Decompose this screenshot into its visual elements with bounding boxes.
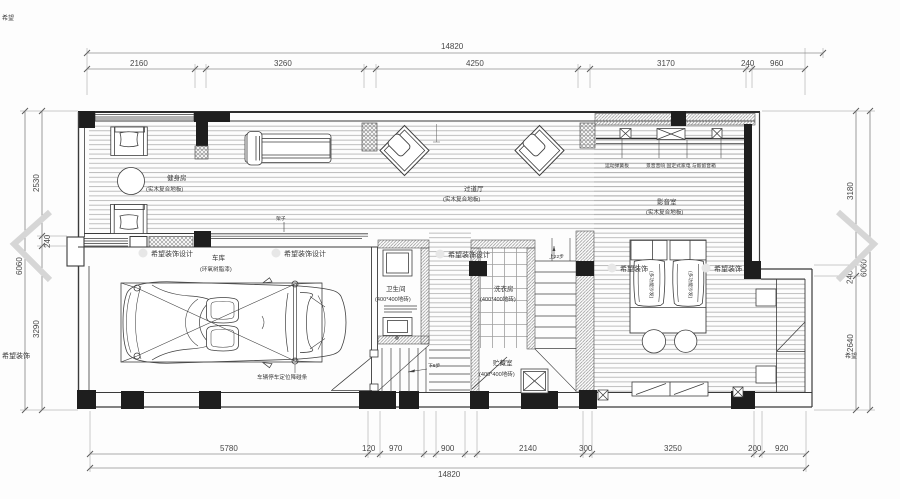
svg-text:2640: 2640 (846, 334, 855, 352)
svg-text:3260: 3260 (274, 59, 292, 68)
svg-text:3290: 3290 (32, 320, 41, 338)
svg-text:960: 960 (770, 59, 784, 68)
svg-text:6060: 6060 (860, 259, 869, 277)
svg-text:(400*400地砖): (400*400地砖) (480, 295, 516, 303)
svg-text:希望装饰: 希望装饰 (2, 351, 30, 360)
svg-text:车库: 车库 (212, 253, 226, 262)
svg-text:架子: 架子 (276, 215, 286, 222)
svg-text:卫生间: 卫生间 (386, 284, 406, 293)
svg-text:(400*400地砖): (400*400地砖) (479, 370, 515, 378)
svg-text:6060: 6060 (15, 257, 24, 275)
svg-text:运动弹簧板: 运动弹簧板 (605, 162, 629, 169)
svg-text:3170: 3170 (657, 59, 675, 68)
svg-text:下6步: 下6步 (428, 363, 440, 369)
svg-text:3180: 3180 (846, 182, 855, 200)
svg-text:(多功能沙发): (多功能沙发) (648, 271, 655, 299)
svg-text:希望: 希望 (845, 352, 857, 360)
svg-text:(多功能沙发): (多功能沙发) (687, 271, 694, 299)
svg-text:(环氧树脂漆): (环氧树脂漆) (200, 265, 232, 273)
svg-text:希望装饰设计: 希望装饰设计 (284, 249, 326, 258)
svg-text:2530: 2530 (32, 174, 41, 192)
svg-text:900: 900 (441, 444, 455, 453)
svg-text:健身房: 健身房 (167, 173, 187, 182)
svg-text:920: 920 (775, 444, 789, 453)
svg-text:5780: 5780 (220, 444, 238, 453)
svg-text:景音音响 固定式家电 与嵌留音箱: 景音音响 固定式家电 与嵌留音箱 (646, 162, 716, 169)
svg-text:14820: 14820 (441, 42, 464, 51)
svg-text:300: 300 (579, 444, 593, 453)
svg-text:车辆停车定位降碰条: 车辆停车定位降碰条 (257, 373, 308, 381)
svg-text:240: 240 (741, 59, 755, 68)
svg-text:贮藏室: 贮藏室 (493, 358, 513, 367)
svg-text:(实木复合地板): (实木复合地板) (646, 208, 683, 216)
svg-text:14820: 14820 (438, 470, 461, 479)
svg-text:4250: 4250 (466, 59, 484, 68)
svg-text:(实木复合地板): (实木复合地板) (443, 195, 480, 203)
svg-text:3250: 3250 (664, 444, 682, 453)
svg-text:希望装饰: 希望装饰 (714, 264, 742, 273)
svg-text:希望装饰设计: 希望装饰设计 (448, 250, 490, 259)
svg-text:200: 200 (748, 444, 762, 453)
svg-text:希望装饰设计: 希望装饰设计 (151, 249, 193, 258)
svg-text:(实木复合地板): (实木复合地板) (146, 185, 183, 193)
svg-text:洗衣房: 洗衣房 (494, 284, 514, 293)
svg-text:120: 120 (362, 444, 376, 453)
svg-text:影音室: 影音室 (657, 197, 677, 206)
svg-text:(400*400地砖): (400*400地砖) (375, 295, 411, 303)
svg-text:2140: 2140 (519, 444, 537, 453)
svg-text:970: 970 (389, 444, 403, 453)
svg-text:过道厅: 过道厅 (464, 184, 484, 193)
svg-text:希望: 希望 (2, 14, 14, 22)
svg-text:上22步: 上22步 (549, 253, 564, 260)
svg-text:2160: 2160 (130, 59, 148, 68)
svg-text:希望装饰: 希望装饰 (620, 264, 648, 273)
